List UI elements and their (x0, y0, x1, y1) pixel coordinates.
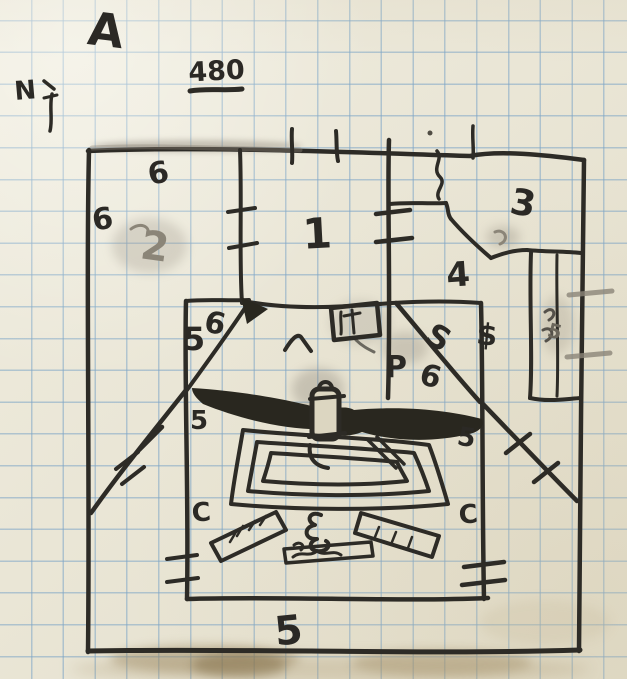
label-5-triangle: 5 (183, 320, 205, 358)
label-5-west: 5 (190, 406, 208, 436)
stepped-dais (231, 430, 448, 509)
label-room-5-south: 5 (272, 607, 304, 656)
label-c-right: C (457, 499, 479, 531)
compass-n: N (13, 75, 37, 107)
chest (331, 303, 380, 352)
closet-pencil-door-ticks (567, 291, 612, 357)
label-closet-mark: 5 (545, 318, 565, 345)
room1-walls (240, 140, 389, 398)
west-diagonal-passage (91, 390, 186, 513)
scale-underline (190, 89, 242, 91)
label-c-left: C (190, 497, 212, 529)
label-6-mid: 6 (416, 357, 445, 396)
east-diagonal-passage (481, 402, 577, 501)
map-drawing: A N 480 6 6 2 1 3 4 5 6 P 6 S $ 5 5 C C … (0, 0, 627, 679)
label-p-mark: P (385, 350, 407, 385)
label-room-6-north: 6 (145, 155, 172, 193)
compass-north-arrow (44, 81, 57, 131)
corner-letter-a: A (85, 1, 127, 59)
winged-idol (192, 382, 483, 468)
label-5-east: 5 (455, 422, 478, 455)
label-room-4: 4 (445, 254, 471, 296)
room4-walls (390, 151, 527, 258)
label-room-2: 2 (138, 222, 172, 271)
label-s-mark: S (419, 315, 458, 359)
label-room-1: 1 (301, 208, 333, 258)
label-room-3: 3 (507, 181, 539, 226)
label-treasure: $ (475, 317, 499, 354)
benches (211, 512, 439, 563)
label-room-6-west: 6 (90, 201, 116, 239)
caret-mark (285, 336, 311, 351)
hand-drawn-dungeon-map: A N 480 6 6 2 1 3 4 5 6 P 6 S $ 5 5 C C … (0, 0, 627, 679)
scale-text: 480 (188, 55, 246, 89)
